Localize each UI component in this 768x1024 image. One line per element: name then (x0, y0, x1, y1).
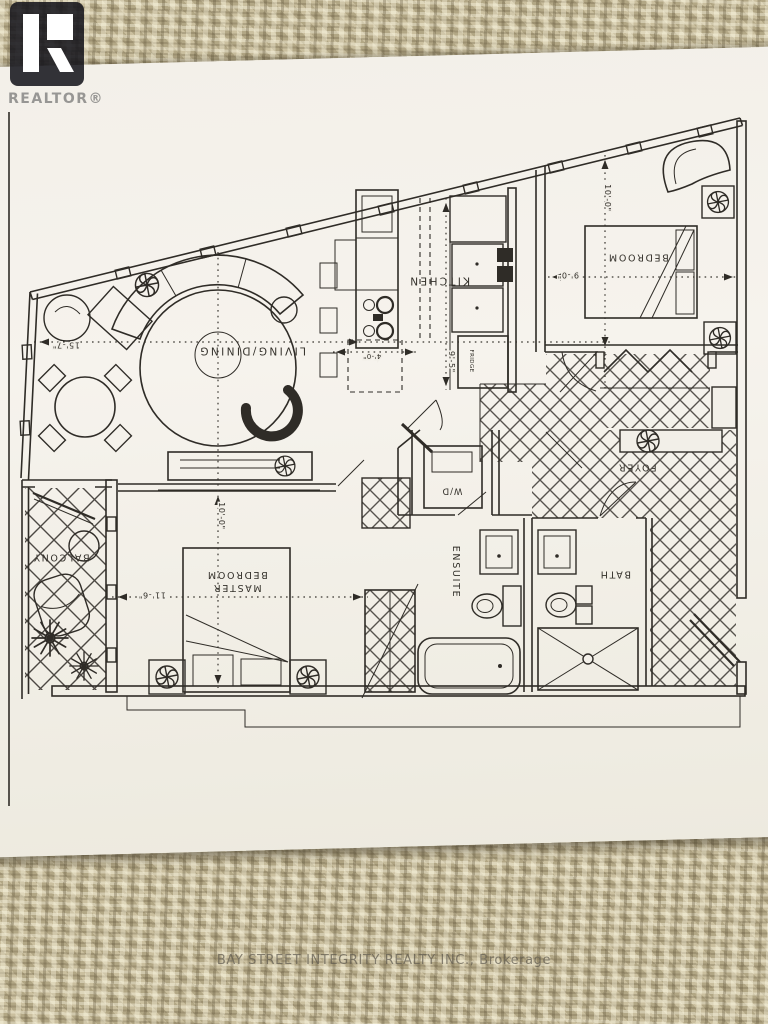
fridge (458, 336, 508, 388)
dim-island-width: 4'-0" (363, 352, 382, 360)
dining-table (55, 377, 115, 437)
dim-bedroom-width: 9'-0" (557, 271, 579, 280)
room-label-foyer: FOYER (617, 462, 656, 473)
laundry-label: W/D (442, 486, 463, 496)
room-label-living-dining: LIVING/DINING (198, 345, 306, 357)
bath-toilet-tank (576, 586, 592, 604)
dim-bedroom-depth: 10'-0" (603, 184, 612, 212)
ensuite-toilet-tank (503, 586, 521, 626)
photo-scene: BALCONY LIVING/DINING (0, 0, 768, 1024)
ceiling-fan-icon (297, 666, 319, 688)
dim-master-depth: 10'-0" (217, 502, 226, 530)
bar-stool (320, 308, 337, 333)
plant-pot (44, 295, 90, 341)
master-bedroom: MASTER BEDROOM (118, 460, 364, 694)
tub-chair (246, 390, 298, 436)
realtor-label: REALTOR® (8, 91, 118, 107)
bar-stool (320, 263, 337, 288)
kitchen: FRIDGE KITCHEN (320, 188, 516, 392)
ceiling-fan-icon (708, 192, 729, 213)
kitchen-back-panel (508, 188, 516, 392)
corner-chair (663, 141, 730, 192)
room-label-balcony: BALCONY (32, 552, 89, 563)
pillow (193, 655, 233, 686)
dim-living-width: 15'-7" (52, 341, 80, 350)
pillow (676, 272, 694, 314)
pillow (241, 659, 281, 685)
realtor-watermark: REALTOR® (8, 2, 118, 107)
floor-plan-drawing: BALCONY LIVING/DINING (0, 0, 768, 1024)
hatched-floors (25, 354, 736, 692)
washer-dryer (424, 446, 482, 508)
brokerage-watermark: BAY STREET INTEGRITY REALTY INC., Broker… (217, 953, 551, 968)
dim-master-width: 11'-6" (138, 591, 166, 600)
ceiling-fan-icon (156, 666, 178, 688)
bar-stool (320, 353, 337, 377)
ceiling-fan-icon (275, 456, 295, 476)
fridge-label: FRIDGE (468, 350, 474, 373)
room-label-master-1: MASTER (212, 582, 261, 593)
dining-chair (105, 425, 132, 452)
room-label-bedroom: BEDROOM (607, 252, 669, 263)
dining-chair (39, 425, 66, 452)
room-label-kitchen: KITCHEN (408, 275, 470, 287)
living-dining: LIVING/DINING (39, 255, 332, 490)
room-label-bath: BATH (599, 569, 631, 580)
realtor-logo-icon (10, 2, 84, 86)
room-label-master-2: BEDROOM (206, 569, 268, 580)
ceiling-fan-icon (135, 273, 158, 296)
dim-kitchen-depth: 9'-5" (447, 351, 456, 373)
foyer-bench (620, 430, 722, 452)
curved-sofa (112, 255, 303, 339)
room-label-ensuite: ENSUITE (450, 546, 461, 599)
